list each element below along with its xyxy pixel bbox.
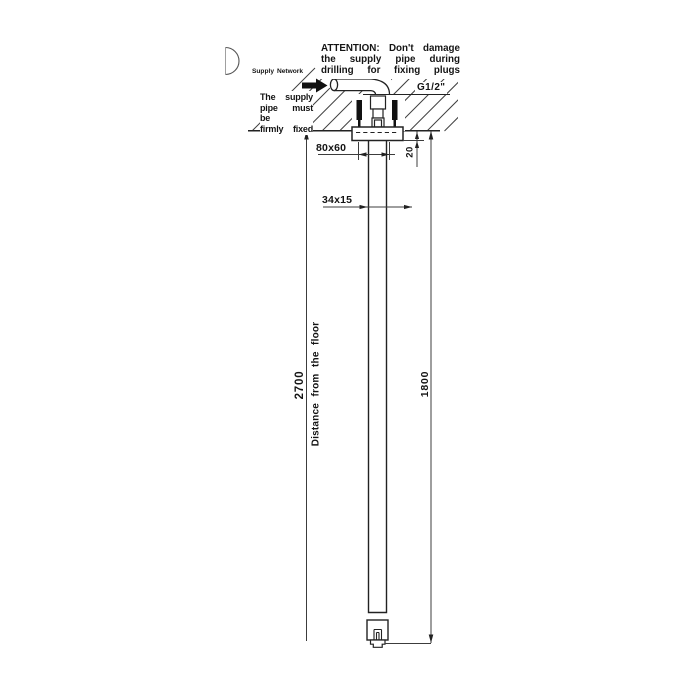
supply-pipe-note: The supply pipe must be firmly fixed xyxy=(260,91,313,135)
floor-distance-caption: Distance from the floor xyxy=(311,322,322,447)
technical-drawing: ATTENTION: Don't damage the supply pipe … xyxy=(0,0,700,700)
dim-label-plate-drop: 20 xyxy=(405,146,416,158)
hand-shower-connector xyxy=(367,620,388,647)
fixing-plug-right xyxy=(392,100,398,120)
supply-pipe-note-line-3: firmly fixed xyxy=(260,124,313,135)
drawing-linework xyxy=(0,0,700,700)
ceiling-plate xyxy=(352,127,403,141)
dim-label-arm-length: 1800 xyxy=(419,371,431,398)
supply-pipe-note-line-2: pipe must be xyxy=(260,103,313,124)
attention-line-3: drilling for fixing plugs xyxy=(321,66,460,77)
partial-circle xyxy=(226,48,239,75)
shower-arm-pipe xyxy=(369,141,387,613)
connector-outlet xyxy=(371,640,386,647)
dim-label-ceiling-height: 2700 xyxy=(294,371,306,400)
fixing-plug-left xyxy=(357,100,363,120)
dim-label-arm-section: 34x15 xyxy=(322,195,352,207)
mounting-nut-inner xyxy=(375,120,382,127)
attention-note: ATTENTION: Don't damage the supply pipe … xyxy=(321,43,460,79)
thread-size-label: G1/2" xyxy=(415,82,447,94)
fixing-plug-right-tip xyxy=(394,120,397,127)
fixing-plug-left-tip xyxy=(358,120,361,127)
mounting-collar xyxy=(371,96,386,109)
dim-label-plate-size: 80x60 xyxy=(316,143,346,155)
supply-network-label: Supply Network xyxy=(252,67,303,76)
supply-pipe-note-line-1: The supply xyxy=(260,92,313,103)
mounting-neck xyxy=(373,109,383,118)
